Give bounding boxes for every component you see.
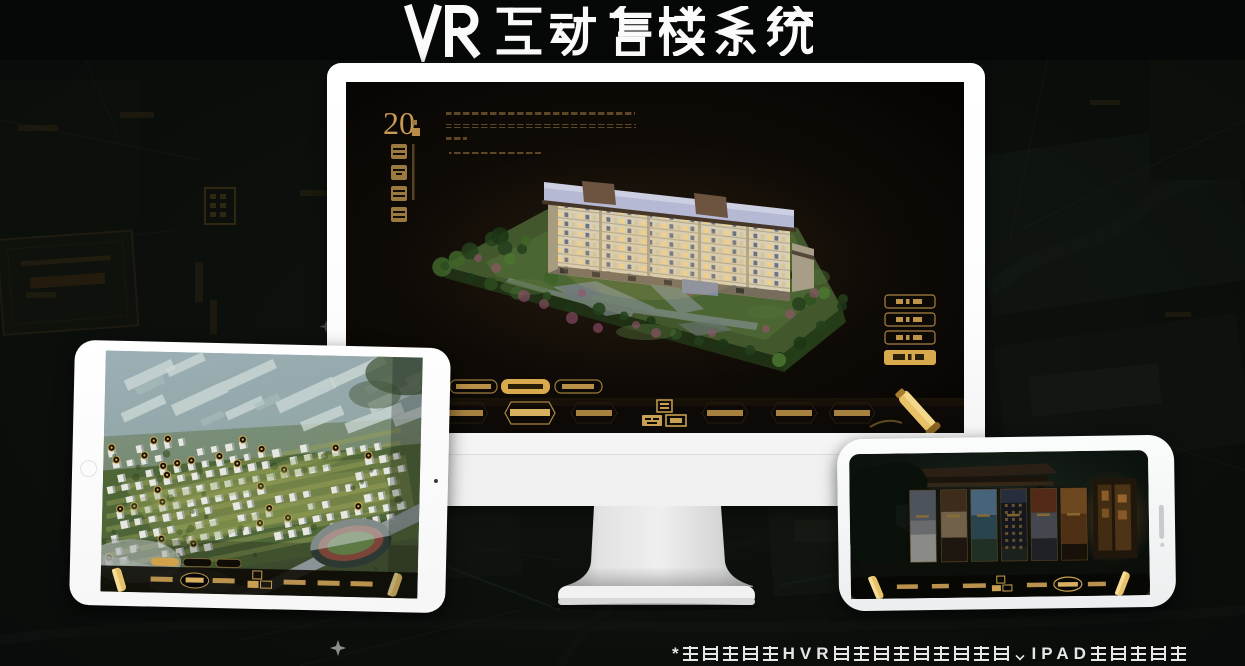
svg-text:20: 20 — [383, 105, 415, 141]
